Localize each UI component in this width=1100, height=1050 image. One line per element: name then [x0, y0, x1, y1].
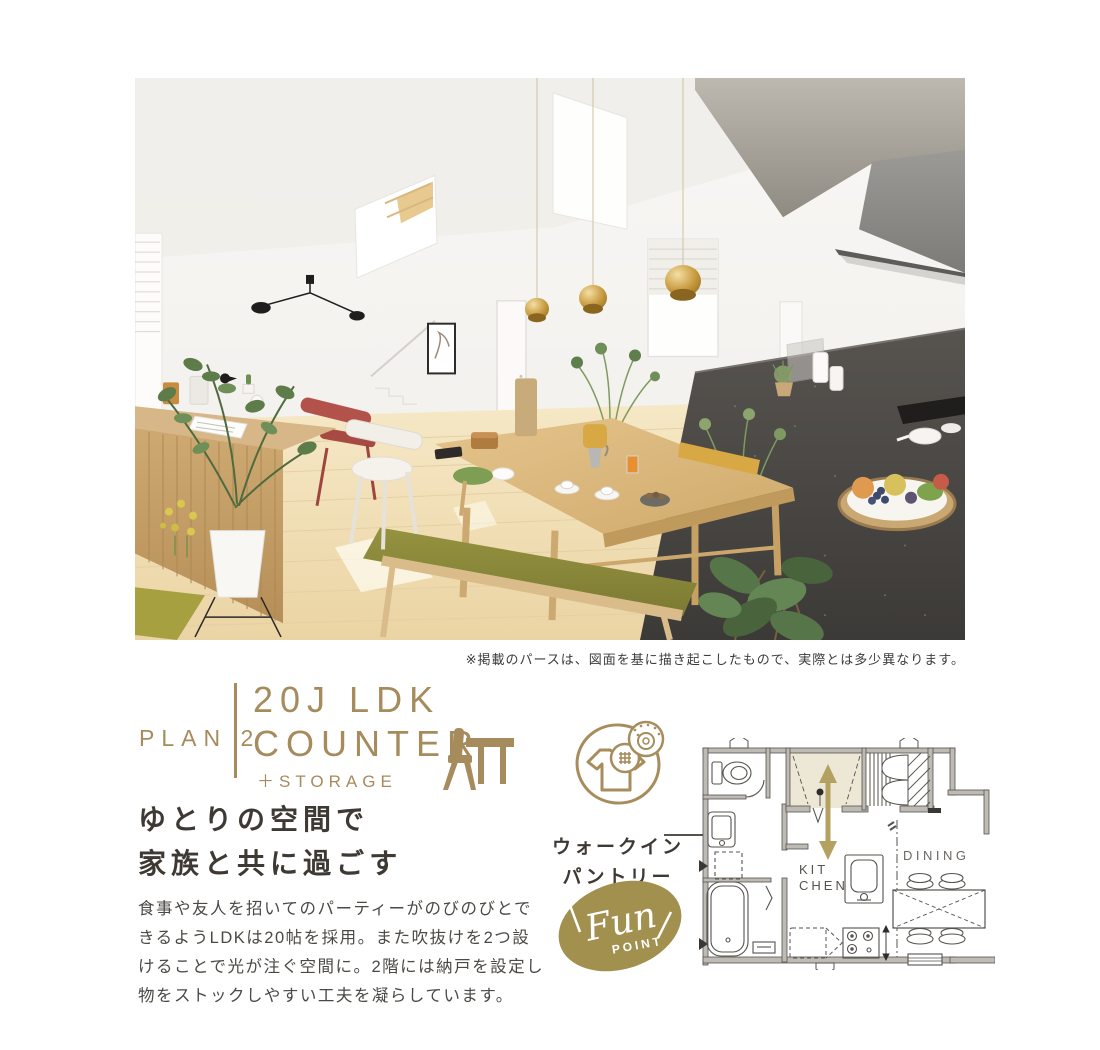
- photo-disclaimer: ※掲載のパースは、図面を基に描き起こしたもので、実際とは多少異なります。: [400, 649, 965, 668]
- donut-icon: [629, 722, 663, 756]
- fruit-basket: [839, 474, 955, 530]
- kitchen-island-sink: [845, 855, 883, 903]
- plan-title-divider: [234, 683, 237, 778]
- fun-point-badge: Fun POINT: [550, 868, 690, 988]
- toilet-fixture: [712, 762, 764, 797]
- framed-art: [428, 324, 455, 374]
- pantry-illustration: [572, 712, 672, 818]
- kitchen-label-line2: CHEN: [799, 878, 848, 893]
- pantry-label-line1: ウォークイン: [548, 833, 688, 863]
- counter-chair-icon: [440, 724, 516, 792]
- room-divider: [888, 820, 897, 957]
- page: ※掲載のパースは、図面を基に描き起こしたもので、実際とは多少異なります。 PLA…: [0, 0, 1100, 1050]
- headline-line2: 家族と共に過ごす: [138, 842, 402, 882]
- hero-interior-photo: [135, 78, 965, 640]
- washbasin: [708, 812, 742, 879]
- floor-plan: KIT CHEN DINING: [695, 738, 995, 970]
- plan-subtitle: ＋STORAGE: [257, 767, 397, 792]
- left-window: [135, 233, 162, 424]
- plan-number-label: PLAN 2: [139, 725, 260, 752]
- body-paragraph-line: 食事や友人を招いてのパーティーがのびのびとで: [138, 895, 558, 919]
- body-paragraph-line: きるようLDKは20帖を採用。また吹抜けを2つ設: [138, 924, 558, 948]
- bathtub: [707, 882, 775, 956]
- body-paragraph-line: けることで光が注ぐ空間に。2階には納戸を設定し: [138, 953, 558, 977]
- kitchen-cart-dashed: [790, 928, 842, 958]
- kitchen-label-line1: KIT: [799, 862, 828, 877]
- dining-set: [893, 874, 985, 966]
- stove: [843, 928, 879, 958]
- dimension-arrow: [883, 926, 889, 960]
- body-paragraph-line: 物をストックしやすい工夫を凝らしています。: [138, 982, 558, 1006]
- headline-line1: ゆとりの空間で: [138, 798, 369, 838]
- dining-label: DINING: [903, 848, 970, 863]
- plan-title-line1: 20J LDK: [253, 679, 440, 721]
